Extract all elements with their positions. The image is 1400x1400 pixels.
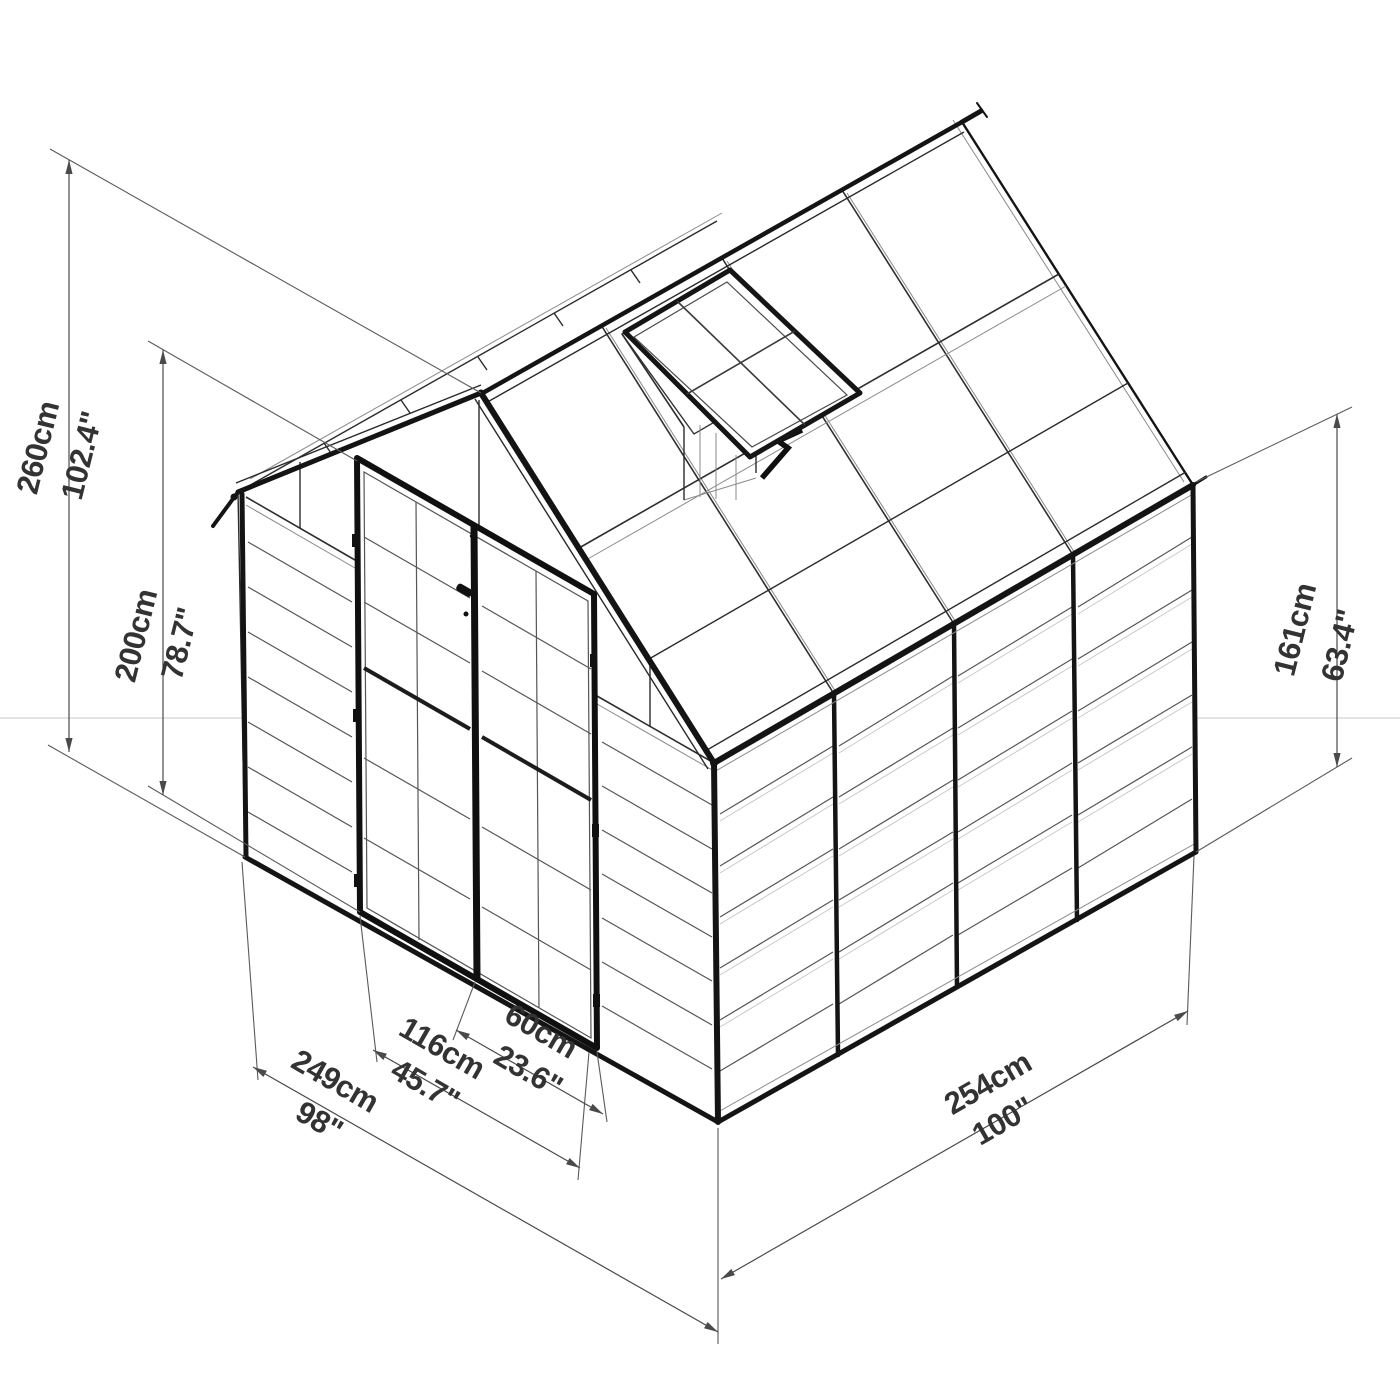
dim-side-wall-height-cm-label: 161cm	[1266, 580, 1323, 680]
drawing-canvas: 260cm 102.4" 200cm 78.7" 161cm 63.4" 249…	[0, 0, 1400, 1400]
dim-side-wall-height: 161cm 63.4"	[1196, 407, 1366, 852]
door-center-stile	[474, 525, 477, 978]
rear-right-corner-post	[1193, 485, 1196, 852]
dim-total-height-in-label: 102.4"	[54, 408, 110, 503]
front-right-corner-post	[714, 763, 718, 1122]
left-eave-joint	[231, 494, 238, 501]
door-lock	[464, 612, 469, 617]
dim-door-height-in-label: 78.7"	[154, 604, 206, 683]
dim-side-wall-height-in-label: 63.4"	[1314, 606, 1366, 685]
greenhouse-dimension-drawing: 260cm 102.4" 200cm 78.7" 161cm 63.4" 249…	[0, 0, 1400, 1400]
